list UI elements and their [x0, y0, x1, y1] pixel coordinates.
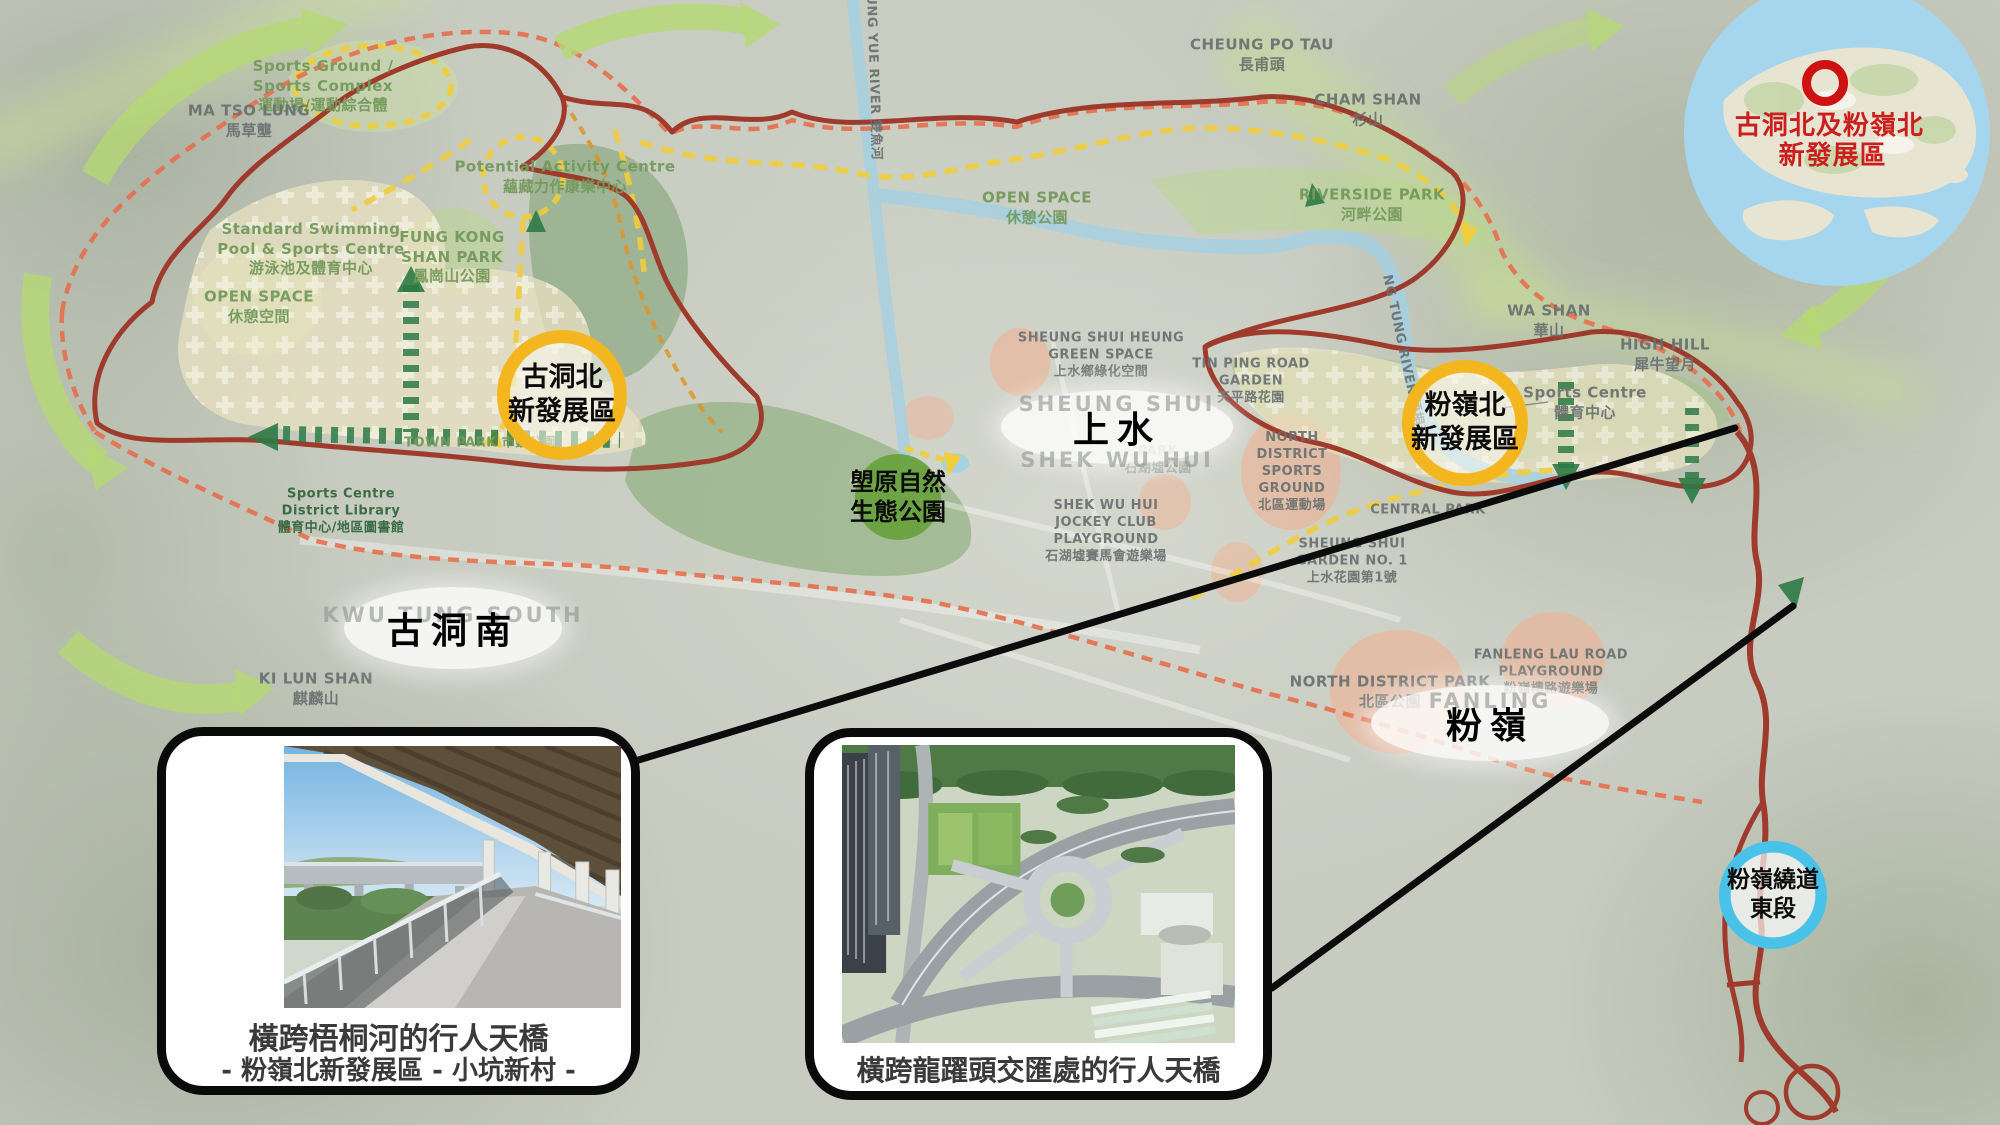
badge-fanling-north-nda: 粉嶺北新發展區 [1402, 360, 1528, 486]
badge-fanling-bypass-eastern-section: 粉嶺繞道東段 [1719, 841, 1827, 949]
inset-title-line2: 新發展區 [1779, 135, 1887, 172]
hong-kong-location-inset: 古洞北及粉嶺北 新發展區 [1684, 0, 1990, 286]
map-label-sports-centre-district-library: Sports CentreDistrict Library體育中心/地區圖書館 [278, 487, 405, 538]
map-label-wa-shan: WA SHAN華山 [1507, 302, 1591, 341]
ghost-label-shek-wu-hui: SHEK WU HUI [1020, 448, 1214, 472]
map-label-north-district-sports-ground: NORTHDISTRICTSPORTSGROUND北區運動場 [1256, 430, 1327, 514]
map-label-central-park: CENTRAL PARK [1370, 503, 1486, 520]
area-label-sheung-shui: 上水 [1073, 401, 1161, 453]
map-label-open-space-nw: OPEN SPACE休憩空間 [204, 288, 314, 327]
bridge-interchange-photo-art [842, 745, 1235, 1043]
map-label-sheung-yue-river: SHEUNG YUE RIVER 雙魚河 [860, 0, 884, 160]
inset-location-ring-marker [1802, 60, 1848, 106]
map-label-open-space-river: OPEN SPACE休憩公園 [982, 189, 1092, 228]
planning-map-canvas: Sports Ground /Sports Complex運動場/運動綜合體 M… [0, 0, 2000, 1125]
callout-bridge-interchange: 橫跨龍躍頭交匯處的行人天橋 [805, 728, 1272, 1100]
badge-kwu-tung-north-nda: 古洞北新發展區 [497, 330, 627, 460]
map-label-ki-lun-shan: KI LUN SHAN麒麟山 [259, 670, 373, 709]
map-label-sheung-shui-heung-green-space: SHEUNG SHUI HEUNGGREEN SPACE上水鄉綠化空間 [1018, 331, 1184, 382]
area-ellipse-kwu-tung-south: KWU TUNG SOUTH 古洞南 [344, 587, 562, 669]
area-ellipse-fanling: FANLING 粉嶺 [1371, 685, 1609, 761]
map-label-standard-swimming-pool: Standard SwimmingPool & Sports Centre游泳池… [217, 220, 404, 279]
area-ellipse-sheung-shui: SHEUNG SHUI 上水 SHEK WU HUI [1001, 390, 1233, 464]
map-label-cham-shan: CHAM SHAN杉山 [1314, 91, 1421, 130]
bridge-river-photo-art [284, 746, 621, 1008]
map-label-shek-wu-hui-jockey-club: SHEK WU HUIJOCKEY CLUBPLAYGROUND石湖墟賽馬會遊樂… [1045, 498, 1167, 566]
callout-caption-bridge-interchange: 橫跨龍躍頭交匯處的行人天橋 [814, 1049, 1263, 1089]
map-label-fung-kong-shan-park: FUNG KONGSHAN PARK鳳崗山公園 [399, 228, 505, 287]
badge-long-valley-nature-park: 塱原自然生態公園 [855, 454, 941, 540]
area-label-fanling: 粉嶺 [1446, 697, 1534, 749]
map-label-cheung-po-tau: CHEUNG PO TAU長甫頭 [1190, 36, 1334, 75]
callout-subcaption-bridge-river: - 粉嶺北新發展區 - 小坑新村 - [166, 1050, 631, 1087]
bridge-interchange-photo [842, 745, 1235, 1043]
map-label-high-hill: HIGH HILL犀牛望月 [1620, 336, 1710, 375]
bridge-river-photo [284, 746, 621, 1008]
map-label-ma-tso-lung: MA TSO LUNG馬草壟 [188, 102, 310, 141]
map-label-sheung-shui-garden-no1: SHEUNG SHUIGARDEN NO. 1上水花園第1號 [1296, 537, 1408, 588]
yellow-route-arrowheads [482, 224, 1478, 476]
map-label-riverside-park: RIVERSIDE PARK河畔公園 [1299, 186, 1445, 225]
area-label-kwu-tung-south: 古洞南 [387, 602, 519, 654]
map-label-potential-activity-centre: Potential Activity Centre蘊藏力作康樂中心 [454, 158, 675, 197]
callout-bridge-river: 橫跨梧桐河的行人天橋 - 粉嶺北新發展區 - 小坑新村 - [157, 727, 640, 1095]
map-label-sports-centre-east: Sports Centre體育中心 [1523, 384, 1647, 423]
